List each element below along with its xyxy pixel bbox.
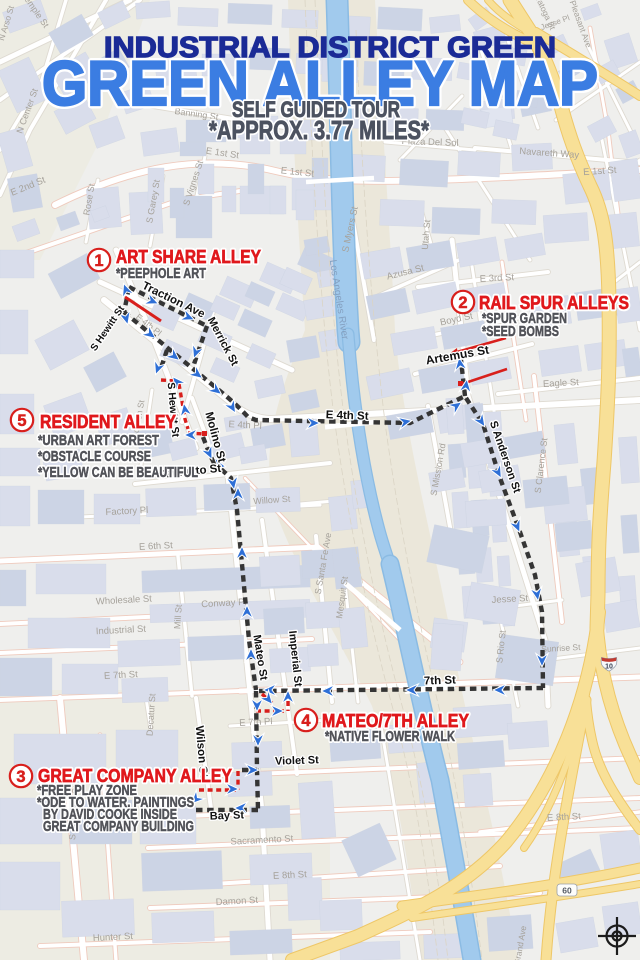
svg-text:Hunter St: Hunter St — [93, 931, 134, 944]
svg-text:Jesse St: Jesse St — [491, 593, 528, 606]
svg-text:2: 2 — [458, 294, 467, 312]
svg-text:1: 1 — [94, 252, 103, 270]
svg-text:E 7th St: E 7th St — [104, 669, 139, 682]
svg-text:Damon St: Damon St — [215, 895, 258, 908]
svg-text:5: 5 — [17, 412, 26, 430]
svg-text:Bay St: Bay St — [210, 809, 245, 822]
svg-text:E 1st St: E 1st St — [583, 165, 617, 178]
svg-text:E 8th St: E 8th St — [273, 869, 308, 882]
svg-text:RAIL SPUR ALLEYS: RAIL SPUR ALLEYS — [479, 293, 629, 313]
svg-text:*URBAN ART FOREST: *URBAN ART FOREST — [38, 433, 159, 449]
svg-text:E 3rd St: E 3rd St — [479, 272, 514, 285]
svg-text:Violet St: Violet St — [275, 754, 320, 768]
svg-text:Sunrise St: Sunrise St — [541, 642, 581, 654]
svg-text:3: 3 — [16, 768, 25, 786]
svg-text:*SEED BOMBS: *SEED BOMBS — [482, 324, 559, 340]
svg-text:*NATIVE FLOWER WALK: *NATIVE FLOWER WALK — [325, 729, 455, 745]
svg-text:E 8th St: E 8th St — [547, 811, 582, 824]
svg-text:*OBSTACLE COURSE: *OBSTACLE COURSE — [38, 449, 151, 465]
svg-text:4: 4 — [301, 712, 311, 730]
svg-text:E 4th St: E 4th St — [326, 409, 369, 422]
svg-text:*YELLOW CAN BE BEAUTIFUL: *YELLOW CAN BE BEAUTIFUL — [38, 465, 198, 481]
svg-text:MATEO/7TH ALLEY: MATEO/7TH ALLEY — [322, 711, 469, 731]
svg-text:7th St: 7th St — [424, 674, 457, 687]
svg-text:Eagle St: Eagle St — [543, 377, 580, 390]
svg-text:Factory Pl: Factory Pl — [105, 505, 148, 518]
svg-text:E 6th St: E 6th St — [139, 540, 174, 553]
svg-text:ART SHARE ALLEY: ART SHARE ALLEY — [116, 247, 261, 267]
svg-text:*PEEPHOLE ART: *PEEPHOLE ART — [116, 266, 206, 282]
svg-text:Mill St: Mill St — [172, 604, 184, 630]
svg-text:*APPROX. 3.77 MILES*: *APPROX. 3.77 MILES* — [209, 115, 430, 145]
svg-text:60: 60 — [562, 886, 572, 896]
svg-text:RESIDENT ALLEY: RESIDENT ALLEY — [40, 412, 176, 432]
svg-text:GREAT COMPANY BUILDING: GREAT COMPANY BUILDING — [43, 819, 194, 835]
svg-text:10: 10 — [605, 664, 613, 671]
